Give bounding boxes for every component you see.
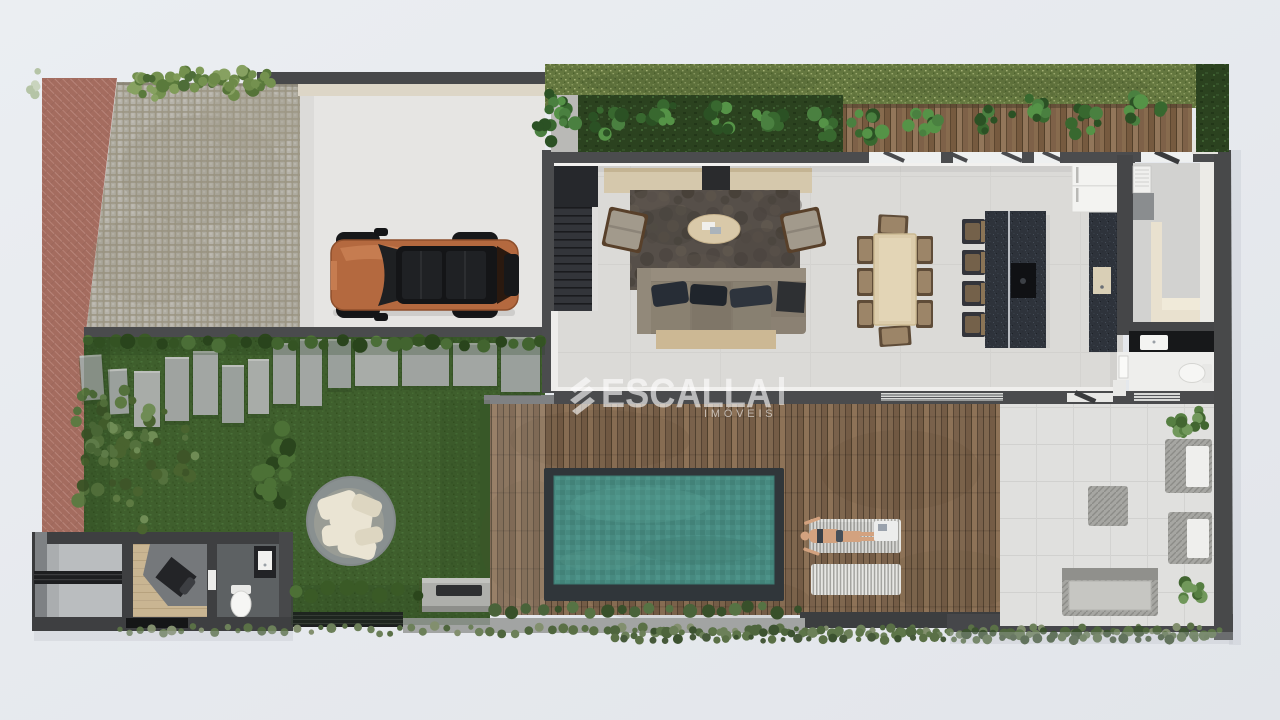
svg-text:IMÓVEIS: IMÓVEIS	[704, 407, 776, 420]
